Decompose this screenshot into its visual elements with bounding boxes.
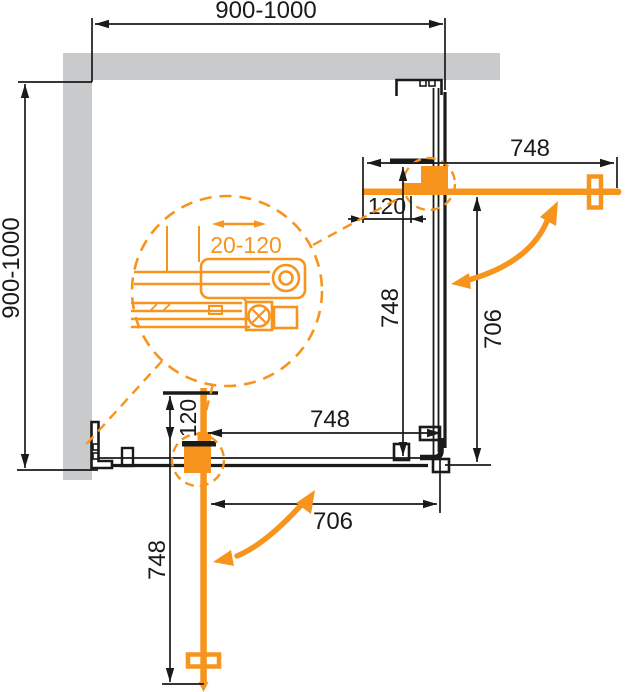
- adjustment-double-arrow-icon: [212, 220, 266, 228]
- roller-icon: [273, 265, 299, 291]
- dim-top-door-pivot: 120: [368, 193, 406, 219]
- dim-bottom-748: 748: [310, 406, 350, 433]
- fixed-panel-bottom: [98, 458, 436, 466]
- profile-clamp-detail: [131, 259, 305, 330]
- detail-bubble: 20-120: [82, 196, 401, 449]
- dim-right-748: 748: [377, 288, 404, 328]
- dim-bottom-door-length: 748: [144, 540, 171, 580]
- dim-left-depth: 900-1000: [0, 217, 25, 318]
- door-swing-arrow-bottom: [213, 490, 315, 566]
- dim-bottom-opening: 706: [313, 508, 353, 535]
- fixed-panel-right: [434, 88, 446, 457]
- wall-left: [63, 53, 92, 480]
- detail-leader-to-wall-profile: [82, 361, 162, 449]
- hinge-top: [402, 166, 448, 191]
- dim-top-width: 900-1000: [215, 0, 316, 24]
- wall-profile-top: [397, 80, 442, 96]
- glass-clamp-near-wall: [122, 448, 133, 466]
- hinge-plate-bottom: [182, 441, 216, 447]
- dim-bottom-door-pivot: 120: [175, 399, 201, 437]
- dim-top-door-length: 748: [510, 135, 550, 162]
- shower-enclosure-plan: 900-1000 900-1000 748 120 748 706 748 70…: [0, 0, 625, 692]
- dimension-lines: [17, 18, 617, 684]
- wall-top: [63, 53, 500, 80]
- dim-right-opening: 706: [480, 309, 507, 349]
- detail-leader-to-top-hinge: [313, 197, 401, 245]
- dimension-arrowheads: [21, 20, 614, 682]
- door-swing-arrow-top: [451, 201, 558, 289]
- dim-profile-adjustment: 20-120: [210, 232, 282, 258]
- technical-drawing-canvas: 900-1000 900-1000 748 120 748 706 748 70…: [0, 0, 625, 692]
